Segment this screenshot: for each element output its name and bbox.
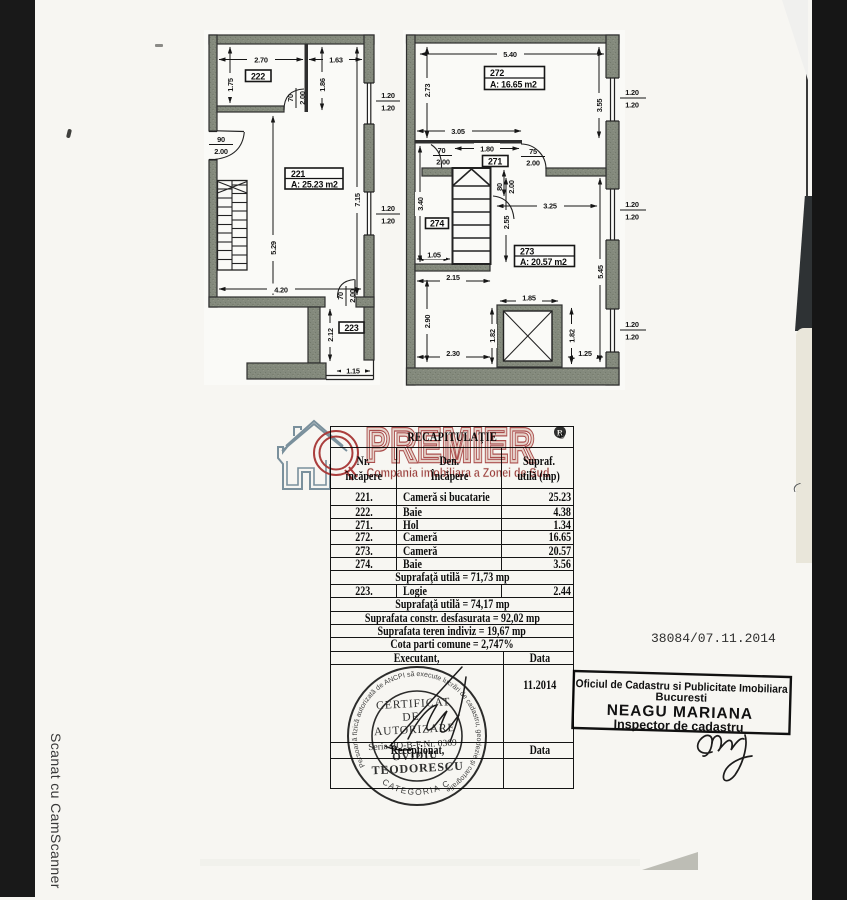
svg-text:CERTIFICAT: CERTIFICAT [376, 696, 451, 712]
svg-text:Compania imobiliara a Zonei de: Compania imobiliara a Zonei de Sud [367, 466, 550, 480]
svg-text:PREMIER: PREMIER [366, 419, 536, 471]
svg-text:TEODORESCU: TEODORESCU [371, 759, 464, 778]
svg-text:CATEGORIA C: CATEGORIA C [380, 777, 452, 797]
svg-text:AUTORIZARE: AUTORIZARE [374, 722, 456, 738]
svg-text:Inspector de cadastru: Inspector de cadastru [613, 717, 743, 735]
svg-text:R: R [557, 428, 564, 438]
svg-text:38084/07.11.2014: 38084/07.11.2014 [651, 631, 776, 646]
